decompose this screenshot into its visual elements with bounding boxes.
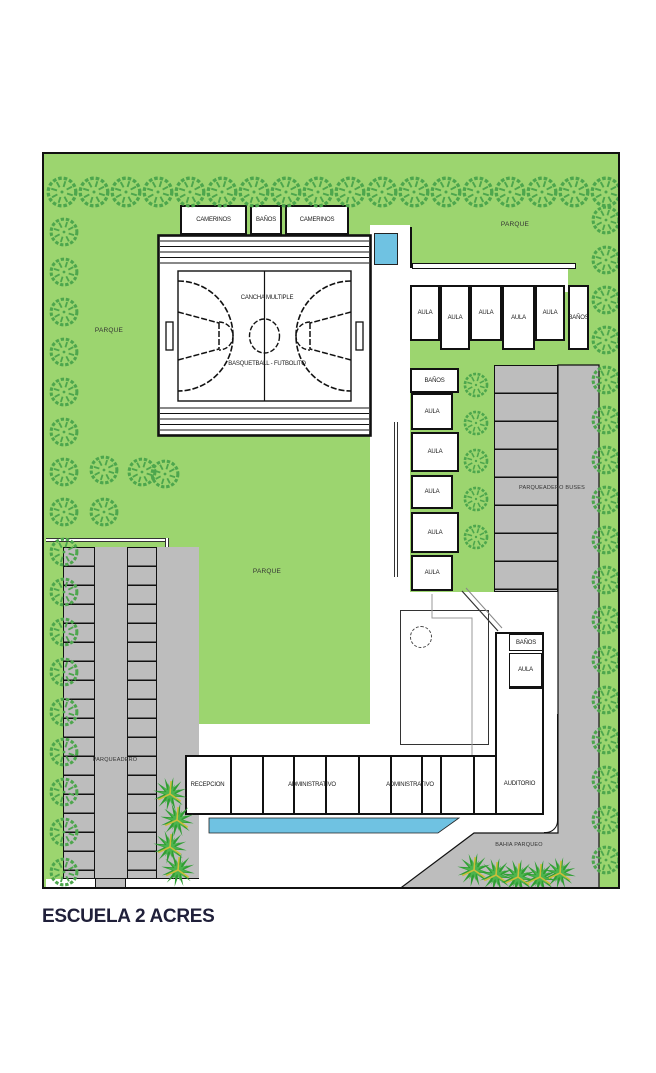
tree-icon <box>208 178 236 206</box>
tree-icon <box>51 819 77 845</box>
tree-icon <box>176 178 204 206</box>
tree-icon <box>593 607 619 633</box>
tree-icon <box>51 219 77 245</box>
shrub-icon <box>457 853 490 886</box>
tree-icon <box>465 488 487 510</box>
tree-icon <box>593 807 619 833</box>
tree-icon <box>240 178 268 206</box>
site-plan: CANCHA MULTIPLE BASQUETBALL - FUTBOLITO … <box>42 152 620 889</box>
page: CANCHA MULTIPLE BASQUETBALL - FUTBOLITO … <box>0 0 656 1073</box>
tree-icon <box>112 178 140 206</box>
tree-icon <box>528 178 556 206</box>
tree-icon <box>592 178 620 206</box>
shrub-icon <box>160 803 193 836</box>
tree-icon <box>593 847 619 873</box>
tree-icon <box>593 247 619 273</box>
tree-icon <box>593 727 619 753</box>
tree-icon <box>593 367 619 393</box>
tree-icon <box>51 699 77 725</box>
tree-icon <box>144 178 172 206</box>
parque-center-label: PARQUE <box>227 569 307 576</box>
tree-icon <box>593 527 619 553</box>
tree-icon <box>272 178 300 206</box>
tree-icon <box>80 178 108 206</box>
tree-icon <box>593 207 619 233</box>
tree-icon <box>48 178 76 206</box>
tree-icon <box>593 447 619 473</box>
bahia-parqueo-label: BAHIA PARQUEO <box>479 843 559 849</box>
shrub-icon <box>153 777 186 810</box>
tree-icon <box>51 419 77 445</box>
tree-icon <box>51 339 77 365</box>
tree-icon <box>51 499 77 525</box>
tree-icon <box>400 178 428 206</box>
parqueadero-label: PARQUEADERO <box>80 758 150 764</box>
parque-top-right-label: PARQUE <box>475 222 555 229</box>
tree-icon <box>593 407 619 433</box>
tree-icon <box>304 178 332 206</box>
tree-icon <box>432 178 460 206</box>
tree-icon <box>368 178 396 206</box>
tree-icon <box>593 687 619 713</box>
tree-icon <box>51 539 77 565</box>
tree-icon <box>51 379 77 405</box>
greenery-layer <box>44 154 620 889</box>
tree-icon <box>51 259 77 285</box>
shrub-icon <box>153 830 186 863</box>
tree-icon <box>593 647 619 673</box>
tree-icon <box>51 659 77 685</box>
tree-icon <box>593 767 619 793</box>
parqueadero-buses-label: PARQUEADERO BUSES <box>502 486 602 492</box>
tree-icon <box>465 412 487 434</box>
parque-left-label: PARQUE <box>69 328 149 335</box>
tree-icon <box>51 299 77 325</box>
tree-icon <box>464 178 492 206</box>
tree-icon <box>465 450 487 472</box>
tree-icon <box>51 779 77 805</box>
tree-icon <box>496 178 524 206</box>
tree-icon <box>51 459 77 485</box>
tree-icon <box>560 178 588 206</box>
plan-title: ESCUELA 2 ACRES <box>42 906 215 928</box>
tree-icon <box>51 739 77 765</box>
tree-icon <box>336 178 364 206</box>
tree-icon <box>51 619 77 645</box>
shrub-icon <box>161 853 194 886</box>
tree-icon <box>465 526 487 548</box>
tree-icon <box>51 579 77 605</box>
tree-icon <box>91 457 117 483</box>
tree-icon <box>593 327 619 353</box>
tree-icon <box>465 374 487 396</box>
tree-icon <box>593 287 619 313</box>
tree-icon <box>51 859 77 885</box>
shrub-icon <box>479 858 512 889</box>
tree-icon <box>91 499 117 525</box>
tree-icon <box>593 567 619 593</box>
